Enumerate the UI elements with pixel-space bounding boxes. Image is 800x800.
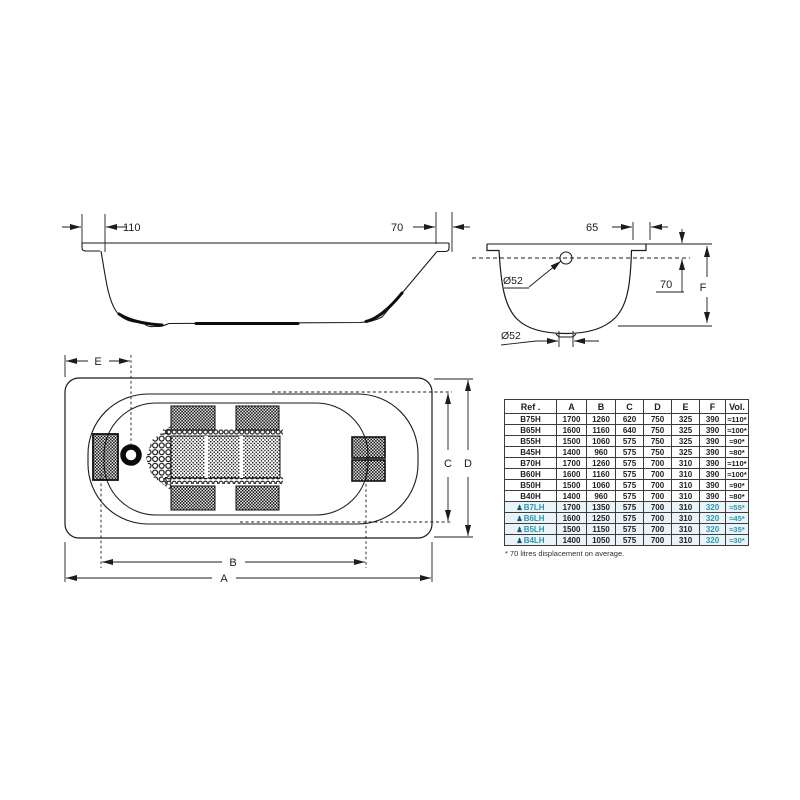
e-cell: 325 xyxy=(672,414,700,425)
e-cell: 310 xyxy=(672,491,700,502)
vol-cell: ≈110* xyxy=(726,458,749,469)
f-cell: 320 xyxy=(700,513,726,524)
d-cell: 700 xyxy=(644,513,672,524)
ref-cell: B50H xyxy=(505,480,557,491)
table-row: ♟B6LH16001250575700310320≈45* xyxy=(505,513,749,524)
table-footnote: * 70 litres displacement on average. xyxy=(504,549,754,558)
person-icon: ♟ xyxy=(516,527,522,534)
column-header: C xyxy=(616,400,644,414)
e-cell: 325 xyxy=(672,436,700,447)
c-cell: 620 xyxy=(616,414,644,425)
column-header: Ref . xyxy=(505,400,557,414)
b-cell: 1060 xyxy=(587,480,616,491)
column-header: Vol. xyxy=(726,400,749,414)
column-header: B xyxy=(587,400,616,414)
table-header-row: Ref .ABCDEFVol. xyxy=(505,400,749,414)
c-cell: 575 xyxy=(616,535,644,546)
table-row: B45H1400960575750325390≈80* xyxy=(505,447,749,458)
c-cell: 575 xyxy=(616,447,644,458)
cross-section-drawing: 65 Ø52 70 F Ø52 xyxy=(458,195,758,360)
ref-cell: B40H xyxy=(505,491,557,502)
overflow-diameter-label: Ø52 xyxy=(503,275,523,287)
table-row: B60H16001160575700310390≈100* xyxy=(505,469,749,480)
f-cell: 390 xyxy=(700,414,726,425)
f-cell: 390 xyxy=(700,469,726,480)
ref-cell: B65H xyxy=(505,425,557,436)
person-icon: ♟ xyxy=(516,505,522,512)
person-icon: ♟ xyxy=(516,538,522,545)
table-row: B50H15001060575700310390≈90* xyxy=(505,480,749,491)
a-cell: 1500 xyxy=(557,524,587,535)
ref-cell: B45H xyxy=(505,447,557,458)
e-cell: 310 xyxy=(672,502,700,513)
table-row: ♟B4LH14001050575700310320≈30* xyxy=(505,535,749,546)
rim-overhang-right-dim: 70 xyxy=(391,222,403,234)
c-cell: 640 xyxy=(616,425,644,436)
ref-cell: ♟B4LH xyxy=(505,535,557,546)
b-cell: 1260 xyxy=(587,414,616,425)
spec-table: Ref .ABCDEFVol. B75H17001260620750325390… xyxy=(504,399,749,546)
a-cell: 1600 xyxy=(557,425,587,436)
f-cell: 390 xyxy=(700,436,726,447)
table-row: ♟B5LH15001150575700310320≈35* xyxy=(505,524,749,535)
top-view-drawing: E C D B A xyxy=(40,350,490,592)
b-cell: 960 xyxy=(587,491,616,502)
a-cell: 1400 xyxy=(557,535,587,546)
b-cell: 1160 xyxy=(587,425,616,436)
overflow-offset-dim: 65 xyxy=(586,222,598,234)
d-cell: 700 xyxy=(644,480,672,491)
vol-cell: ≈80* xyxy=(726,491,749,502)
drain-diameter-label: Ø52 xyxy=(501,330,521,342)
f-cell: 390 xyxy=(700,491,726,502)
b-cell: 1350 xyxy=(587,502,616,513)
rim-to-overflow-dim: 70 xyxy=(660,279,672,291)
a-cell: 1500 xyxy=(557,436,587,447)
f-cell: 390 xyxy=(700,458,726,469)
column-header: A xyxy=(557,400,587,414)
total-width-dim-label: D xyxy=(464,458,472,470)
a-cell: 1400 xyxy=(557,491,587,502)
d-cell: 750 xyxy=(644,425,672,436)
e-cell: 310 xyxy=(672,524,700,535)
ref-cell: ♟B6LH xyxy=(505,513,557,524)
bathtub-spec-sheet: 110 70 xyxy=(0,0,800,800)
a-cell: 1700 xyxy=(557,414,587,425)
c-cell: 575 xyxy=(616,469,644,480)
b-cell: 1060 xyxy=(587,436,616,447)
ref-cell: B60H xyxy=(505,469,557,480)
side-view-drawing: 110 70 xyxy=(40,198,470,350)
drain-offset-dim-label: E xyxy=(94,356,101,368)
depth-dim-label: F xyxy=(700,282,707,294)
spec-table-body: B75H17001260620750325390≈110*B65H1600116… xyxy=(505,414,749,546)
d-cell: 700 xyxy=(644,524,672,535)
e-cell: 310 xyxy=(672,513,700,524)
total-length-dim-label: A xyxy=(220,573,228,585)
d-cell: 700 xyxy=(644,502,672,513)
column-header: D xyxy=(644,400,672,414)
c-cell: 575 xyxy=(616,524,644,535)
vol-cell: ≈110* xyxy=(726,414,749,425)
d-cell: 750 xyxy=(644,447,672,458)
table-row: B75H17001260620750325390≈110* xyxy=(505,414,749,425)
ref-cell: ♟B5LH xyxy=(505,524,557,535)
c-cell: 575 xyxy=(616,491,644,502)
e-cell: 310 xyxy=(672,469,700,480)
table-row: B70H17001260575700310390≈110* xyxy=(505,458,749,469)
inner-width-dim-label: C xyxy=(444,458,452,470)
a-cell: 1600 xyxy=(557,513,587,524)
table-row: B55H15001060575750325390≈90* xyxy=(505,436,749,447)
d-cell: 700 xyxy=(644,491,672,502)
vol-cell: ≈90* xyxy=(726,436,749,447)
d-cell: 750 xyxy=(644,436,672,447)
side-view-tub-outline xyxy=(82,243,449,327)
e-cell: 310 xyxy=(672,535,700,546)
vol-cell: ≈30* xyxy=(726,535,749,546)
f-cell: 390 xyxy=(700,425,726,436)
vol-cell: ≈100* xyxy=(726,425,749,436)
a-cell: 1400 xyxy=(557,447,587,458)
spec-table-block: Ref .ABCDEFVol. B75H17001260620750325390… xyxy=(504,399,754,558)
d-cell: 700 xyxy=(644,469,672,480)
a-cell: 1700 xyxy=(557,458,587,469)
c-cell: 575 xyxy=(616,458,644,469)
vol-cell: ≈45* xyxy=(726,513,749,524)
e-cell: 325 xyxy=(672,447,700,458)
b-cell: 1250 xyxy=(587,513,616,524)
ref-cell: B75H xyxy=(505,414,557,425)
c-cell: 575 xyxy=(616,502,644,513)
a-cell: 1600 xyxy=(557,469,587,480)
column-header: F xyxy=(700,400,726,414)
vol-cell: ≈90* xyxy=(726,480,749,491)
ref-cell: B70H xyxy=(505,458,557,469)
vol-cell: ≈100* xyxy=(726,469,749,480)
column-header: E xyxy=(672,400,700,414)
vol-cell: ≈80* xyxy=(726,447,749,458)
ref-cell: B55H xyxy=(505,436,557,447)
rim-overhang-left-dim: 110 xyxy=(123,222,141,234)
side-view-support-pads xyxy=(119,293,402,325)
f-cell: 390 xyxy=(700,480,726,491)
b-cell: 960 xyxy=(587,447,616,458)
e-cell: 310 xyxy=(672,458,700,469)
vol-cell: ≈55* xyxy=(726,502,749,513)
table-row: B65H16001160640750325390≈100* xyxy=(505,425,749,436)
d-cell: 750 xyxy=(644,414,672,425)
c-cell: 575 xyxy=(616,480,644,491)
c-cell: 575 xyxy=(616,436,644,447)
b-cell: 1050 xyxy=(587,535,616,546)
b-cell: 1260 xyxy=(587,458,616,469)
e-cell: 310 xyxy=(672,480,700,491)
c-cell: 575 xyxy=(616,513,644,524)
a-cell: 1700 xyxy=(557,502,587,513)
bottom-length-dim-label: B xyxy=(229,557,236,569)
f-cell: 320 xyxy=(700,524,726,535)
person-icon: ♟ xyxy=(516,516,522,523)
f-cell: 390 xyxy=(700,447,726,458)
f-cell: 320 xyxy=(700,535,726,546)
b-cell: 1150 xyxy=(587,524,616,535)
table-row: ♟B7LH17001350575700310320≈55* xyxy=(505,502,749,513)
e-cell: 325 xyxy=(672,425,700,436)
ref-cell: ♟B7LH xyxy=(505,502,557,513)
vol-cell: ≈35* xyxy=(726,524,749,535)
drain-hole xyxy=(123,447,139,463)
f-cell: 320 xyxy=(700,502,726,513)
a-cell: 1500 xyxy=(557,480,587,491)
d-cell: 700 xyxy=(644,458,672,469)
d-cell: 700 xyxy=(644,535,672,546)
table-row: B40H1400960575700310390≈80* xyxy=(505,491,749,502)
b-cell: 1160 xyxy=(587,469,616,480)
